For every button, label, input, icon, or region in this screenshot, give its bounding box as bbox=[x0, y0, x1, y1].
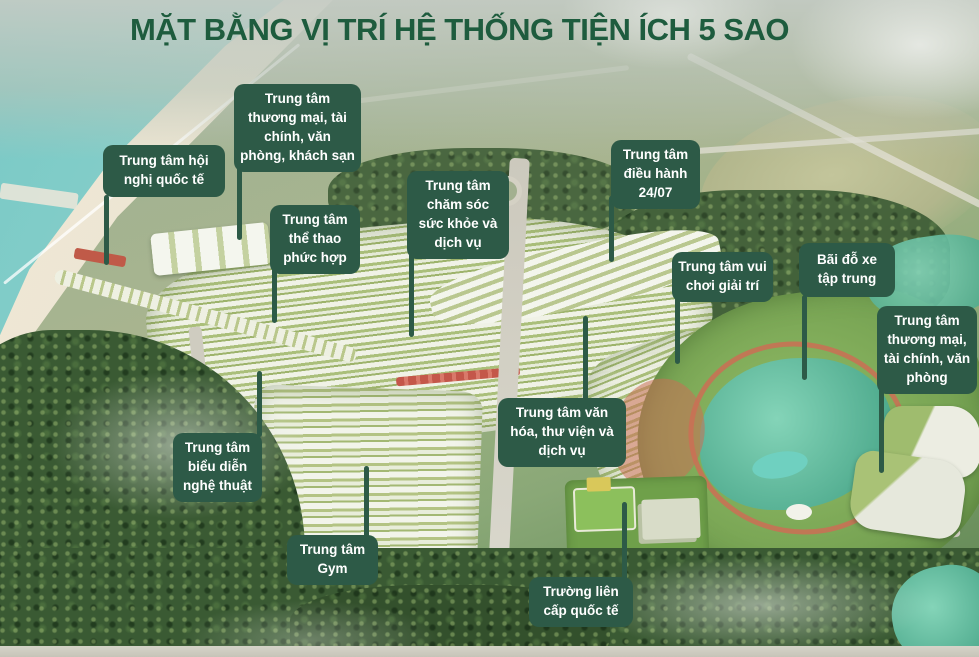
callout-label: Trung tâm thương mại, tài chính, văn phò… bbox=[883, 312, 971, 388]
masterplan-aerial-map: MẶT BẰNG VỊ TRÍ HỆ THỐNG TIỆN ÍCH 5 SAO … bbox=[0, 0, 979, 657]
callout-van-hoa-thu-vien: Trung tâm văn hóa, thư viện và dịch vụ bbox=[498, 398, 626, 467]
callout-pointer-gym bbox=[364, 466, 369, 538]
callout-pointer-cham-soc bbox=[409, 249, 414, 337]
callout-pointer-bieu-dien bbox=[257, 371, 262, 437]
callout-label: Trung tâm thể thao phức hợp bbox=[276, 211, 354, 268]
callout-bai-do-xe: Bãi đỗ xe tập trung bbox=[799, 243, 895, 297]
callout-label: Trung tâm chăm sóc sức khỏe và dịch vụ bbox=[413, 177, 503, 253]
callout-label: Trung tâm điều hành 24/07 bbox=[617, 146, 694, 203]
callout-label: Trung tâm Gym bbox=[293, 541, 372, 579]
callout-pointer-van-hoa bbox=[583, 316, 588, 402]
callout-label: Trường liên cấp quốc tế bbox=[535, 583, 627, 621]
callout-gym: Trung tâm Gym bbox=[287, 535, 378, 585]
callout-pointer-truong bbox=[622, 502, 627, 580]
callout-label: Trung tâm văn hóa, thư viện và dịch vụ bbox=[504, 404, 620, 461]
callout-label: Trung tâm hội nghị quốc tế bbox=[109, 152, 219, 190]
callout-label: Trung tâm vui chơi giải trí bbox=[678, 258, 767, 296]
callout-pointer-vui-choi bbox=[675, 294, 680, 364]
callout-thuong-mai-van-phong: Trung tâm thương mại, tài chính, văn phò… bbox=[877, 306, 977, 394]
callout-pointer-hoi-nghi bbox=[104, 195, 109, 265]
callout-hoi-nghi-quoc-te: Trung tâm hội nghị quốc tế bbox=[103, 145, 225, 197]
callout-thuong-mai-khach-san: Trung tâm thương mại, tài chính, văn phò… bbox=[234, 84, 361, 172]
school-building bbox=[641, 498, 700, 540]
callout-label: Trung tâm thương mại, tài chính, văn phò… bbox=[240, 90, 355, 166]
callout-the-thao-phuc-hop: Trung tâm thể thao phức hợp bbox=[270, 205, 360, 274]
callout-pointer-bai-do-xe bbox=[802, 295, 807, 380]
mist bbox=[590, 555, 930, 655]
callout-label: Bãi đỗ xe tập trung bbox=[805, 251, 889, 289]
page-title: MẶT BẰNG VỊ TRÍ HỆ THỐNG TIỆN ÍCH 5 SAO bbox=[0, 12, 919, 52]
canopy-structure bbox=[786, 504, 812, 520]
sports-court bbox=[586, 477, 610, 492]
boundary-road bbox=[0, 646, 979, 657]
callout-label: Trung tâm biểu diễn nghệ thuật bbox=[179, 439, 256, 496]
callout-cham-soc-suc-khoe: Trung tâm chăm sóc sức khỏe và dịch vụ bbox=[407, 171, 509, 259]
callout-pointer-thuong-mai-vp bbox=[879, 385, 884, 473]
callout-bieu-dien-nghe-thuat: Trung tâm biểu diễn nghệ thuật bbox=[173, 433, 262, 502]
callout-dieu-hanh-24-07: Trung tâm điều hành 24/07 bbox=[611, 140, 700, 209]
callout-truong-lien-cap: Trường liên cấp quốc tế bbox=[529, 577, 633, 627]
callout-vui-choi-giai-tri: Trung tâm vui chơi giải trí bbox=[672, 252, 773, 302]
